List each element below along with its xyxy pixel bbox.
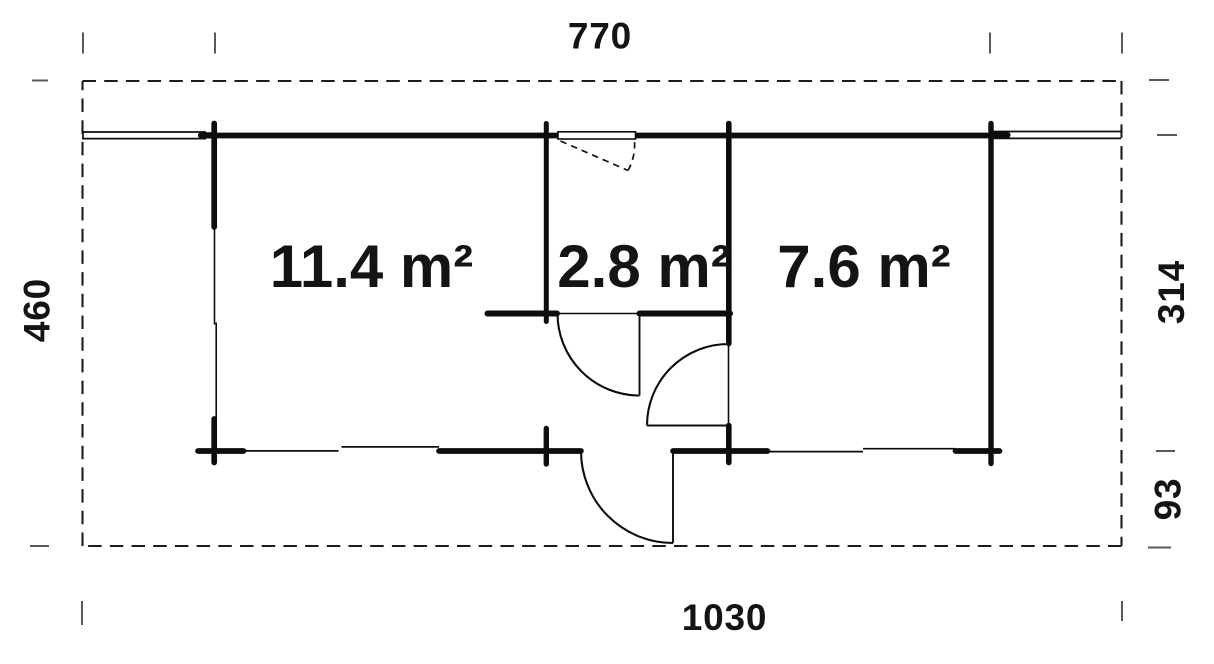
svg-text:314: 314 — [1151, 260, 1192, 324]
svg-text:1030: 1030 — [682, 597, 768, 638]
svg-text:7.6 m²: 7.6 m² — [777, 233, 950, 300]
svg-text:460: 460 — [17, 278, 58, 342]
svg-text:770: 770 — [568, 16, 632, 57]
svg-text:93: 93 — [1148, 478, 1189, 521]
svg-text:11.4 m²: 11.4 m² — [270, 233, 473, 300]
svg-text:2.8 m²: 2.8 m² — [557, 233, 730, 300]
